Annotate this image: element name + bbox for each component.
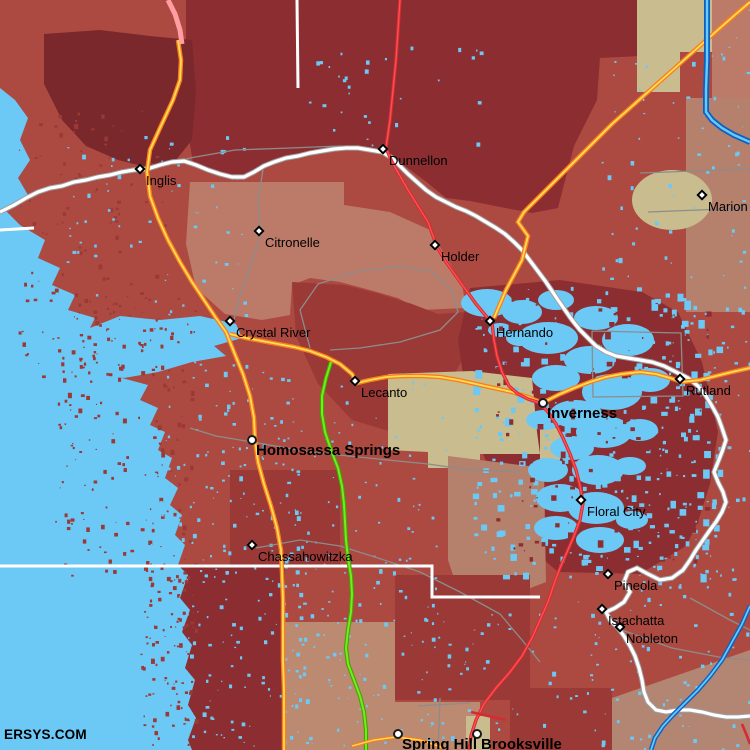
town-label: Holder (441, 250, 479, 264)
town-label: Homosassa Springs (256, 443, 400, 459)
map-canvas: InglisDunnellonMarionCitronelleHolderCry… (0, 0, 750, 750)
town-label: Crystal River (236, 326, 310, 340)
town-label: Dunnellon (389, 154, 448, 168)
town-label: Brooksville (481, 737, 562, 750)
town-label: Pineola (614, 579, 657, 593)
town-label: Istachatta (608, 614, 664, 628)
town-label: Citronelle (265, 236, 320, 250)
town-label: Lecanto (361, 386, 407, 400)
town-label: Nobleton (626, 632, 678, 646)
watermark: ERSYS.COM (4, 727, 87, 742)
town-label: Hernando (496, 326, 553, 340)
town-label: Marion (708, 200, 748, 214)
town-label: Inglis (146, 174, 176, 188)
town-label: Chassahowitzka (258, 550, 353, 564)
town-label: Inverness (547, 406, 617, 422)
town-label: Spring Hill (402, 737, 477, 750)
town-label: Rutland (686, 384, 731, 398)
town-label: Floral City (587, 505, 646, 519)
